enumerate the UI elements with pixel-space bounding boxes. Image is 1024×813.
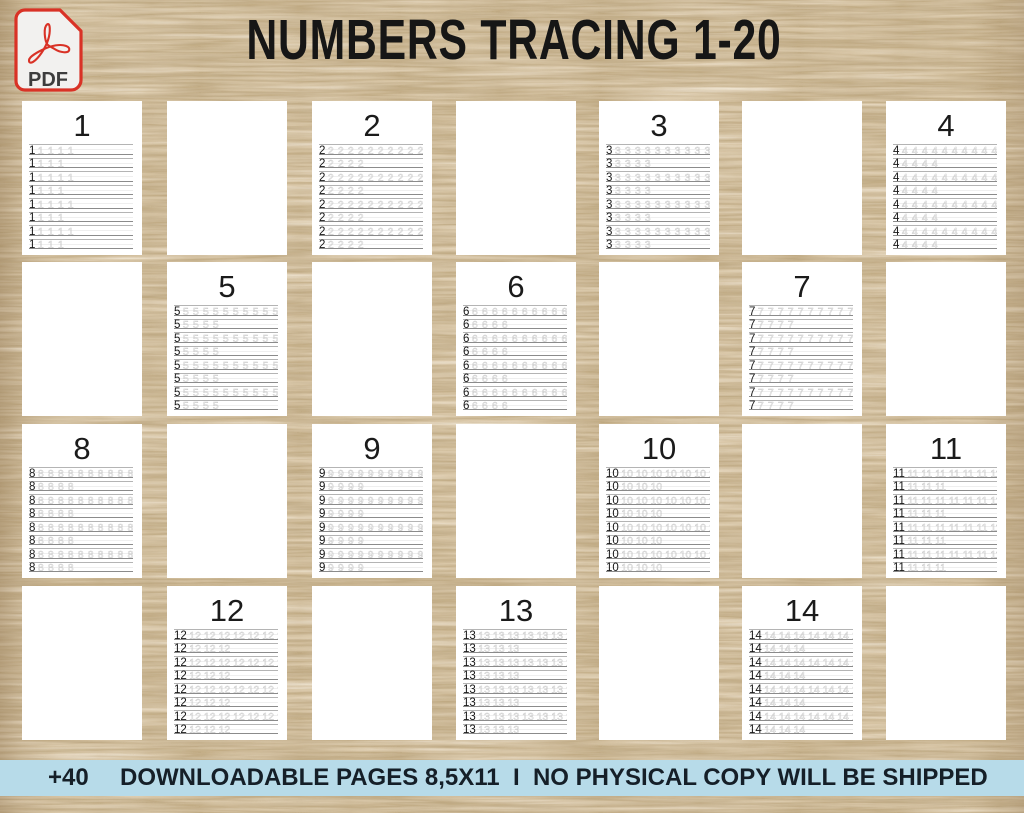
svg-text:PDF: PDF [28,69,68,91]
